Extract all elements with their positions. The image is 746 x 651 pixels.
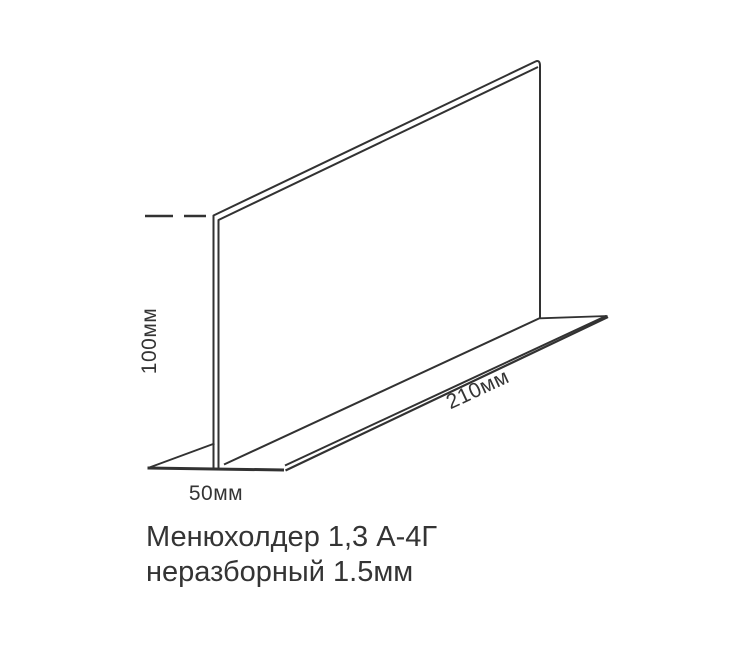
product-caption-line1: Менюхолдер 1,3 А-4Г — [146, 520, 437, 555]
height-dimension-label: 100мм — [138, 308, 162, 374]
product-caption: Менюхолдер 1,3 А-4Г неразборный 1.5мм — [146, 520, 437, 590]
product-caption-line2: неразборный 1.5мм — [146, 555, 437, 590]
width-dimension-label: 50мм — [189, 482, 243, 506]
product-drawing-canvas: 100мм 210мм 50мм Менюхолдер 1,3 А-4Г нер… — [0, 0, 746, 651]
panel-thickness-line — [219, 67, 539, 469]
base-bottom-edge — [148, 468, 285, 470]
panel-outer-outline — [214, 61, 541, 469]
base-left-edge — [148, 444, 215, 469]
base-right-edge — [540, 316, 608, 318]
